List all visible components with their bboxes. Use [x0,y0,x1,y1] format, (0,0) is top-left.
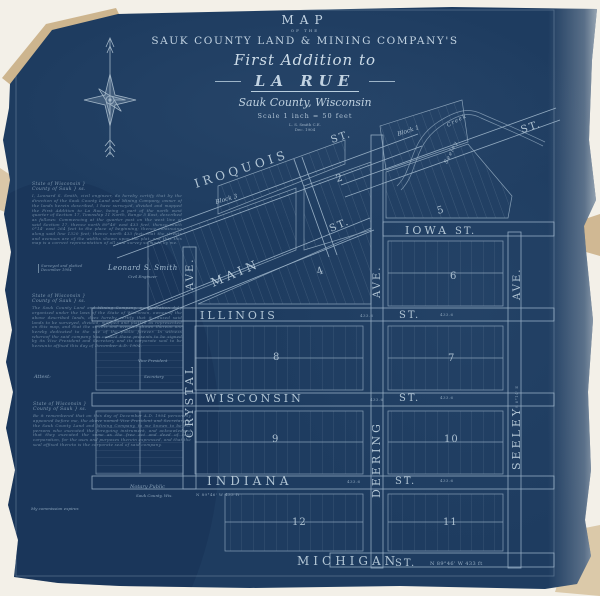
first-addition-line: First Addition to [140,51,470,69]
block-12-label: 12 [292,517,307,528]
owner-certificate: State of Wisconsin } County of Sauk } ss… [32,294,182,350]
block-11-label: 11 [443,517,458,528]
cert-place-line: County of Sauk } ss. [33,407,191,412]
survey-note: Surveyed and platted December 1904 [38,264,89,273]
block-10-label: 10 [444,434,459,445]
secretary-signature: Secretary [144,374,164,379]
notary-certificate: State of Wisconsin } County of Sauk } ss… [33,402,191,454]
indiana-bearing: N 89°46' W 433 ft [196,492,240,497]
attest-label: Attest: [34,374,51,380]
indiana-st-suffix: ST. [395,476,416,487]
notary-county-line: Sauk County, Wis. [136,493,173,498]
cert-place-line: County of Sauk } ss. [32,299,182,304]
illinois-st-suffix: ST. [399,310,420,321]
surveyor-signature: Leonard S. Smith [108,264,178,272]
wisconsin-dimension: 433.6 [370,397,384,402]
company-name: SAUK COUNTY LAND & MINING COMPANY'S [140,35,470,47]
wisconsin-street-label: WISCONSIN [205,392,304,405]
scanned-blueprint-plat-map: IROQUOIS ST. ST. MAIN ST. IOWA ST. ILLIN… [0,0,600,596]
of-the: OF THE [140,28,470,33]
iowa-street-label: IOWA [405,224,449,237]
deering-ave-suffix: AVE. [372,266,383,299]
county-line: Sauk County, Wisconsin [140,96,470,109]
iowa-st-suffix: ST. [455,226,476,237]
block-6-lots [388,241,503,306]
illinois-dimension-2: 433.6 [440,312,454,317]
crystal-ave-suffix: AVE. [185,258,196,291]
notary-signature: Notary Public [130,484,165,490]
illinois-dimension: 433.6 [360,313,374,318]
indiana-street-label: INDIANA [207,474,292,488]
commission-expires-line: My commission expires [31,506,79,511]
seeley-ave-suffix: AVE. [512,268,523,301]
map-title-word: MAP [140,13,470,27]
surveyor-certificate-body: I, Leonard S. Smith, civil engineer, do … [32,194,182,258]
illinois-street-label: ILLINOIS [200,309,278,322]
michigan-street-label: MICHIGAN [297,554,399,568]
notary-certificate-body: Be it remembered that on this day of Dec… [33,414,191,454]
seeley-bearing: S 0°14' E [514,385,519,408]
block-8-label: 8 [273,352,280,363]
deering-avenue-label: DEERING [370,421,383,498]
seeley-avenue-label: SEELEY [510,406,523,470]
block-9-label: 9 [272,434,279,445]
scale-note: Scale 1 inch = 50 feet [140,112,470,120]
michigan-st-suffix: ST. [395,558,416,569]
indiana-dimension-2: 433.6 [440,478,454,483]
title-block: MAP OF THE SAUK COUNTY LAND & MINING COM… [140,13,470,132]
wisconsin-st-suffix: ST. [399,393,420,404]
surveyor-certificate: State of Wisconsin } County of Sauk } ss… [32,182,182,258]
block-6-label: 6 [450,271,457,282]
cert-place-line: County of Sauk } ss. [32,187,182,192]
block-7-label: 7 [448,353,455,364]
surveyor-title: Civil Engineer [128,274,157,279]
indiana-dimension: 433.6 [347,479,361,484]
wisconsin-dimension-2: 433.6 [440,395,454,400]
la-rue-title: LA RUE [251,72,359,92]
survey-date: Dec. 1904 [140,127,470,132]
vice-president-signature: Vice President [138,358,167,363]
michigan-bearing: N 89°46' W 433 ft [430,561,483,567]
owner-certificate-body: The Sauk County Land and Mining Company,… [32,306,182,350]
